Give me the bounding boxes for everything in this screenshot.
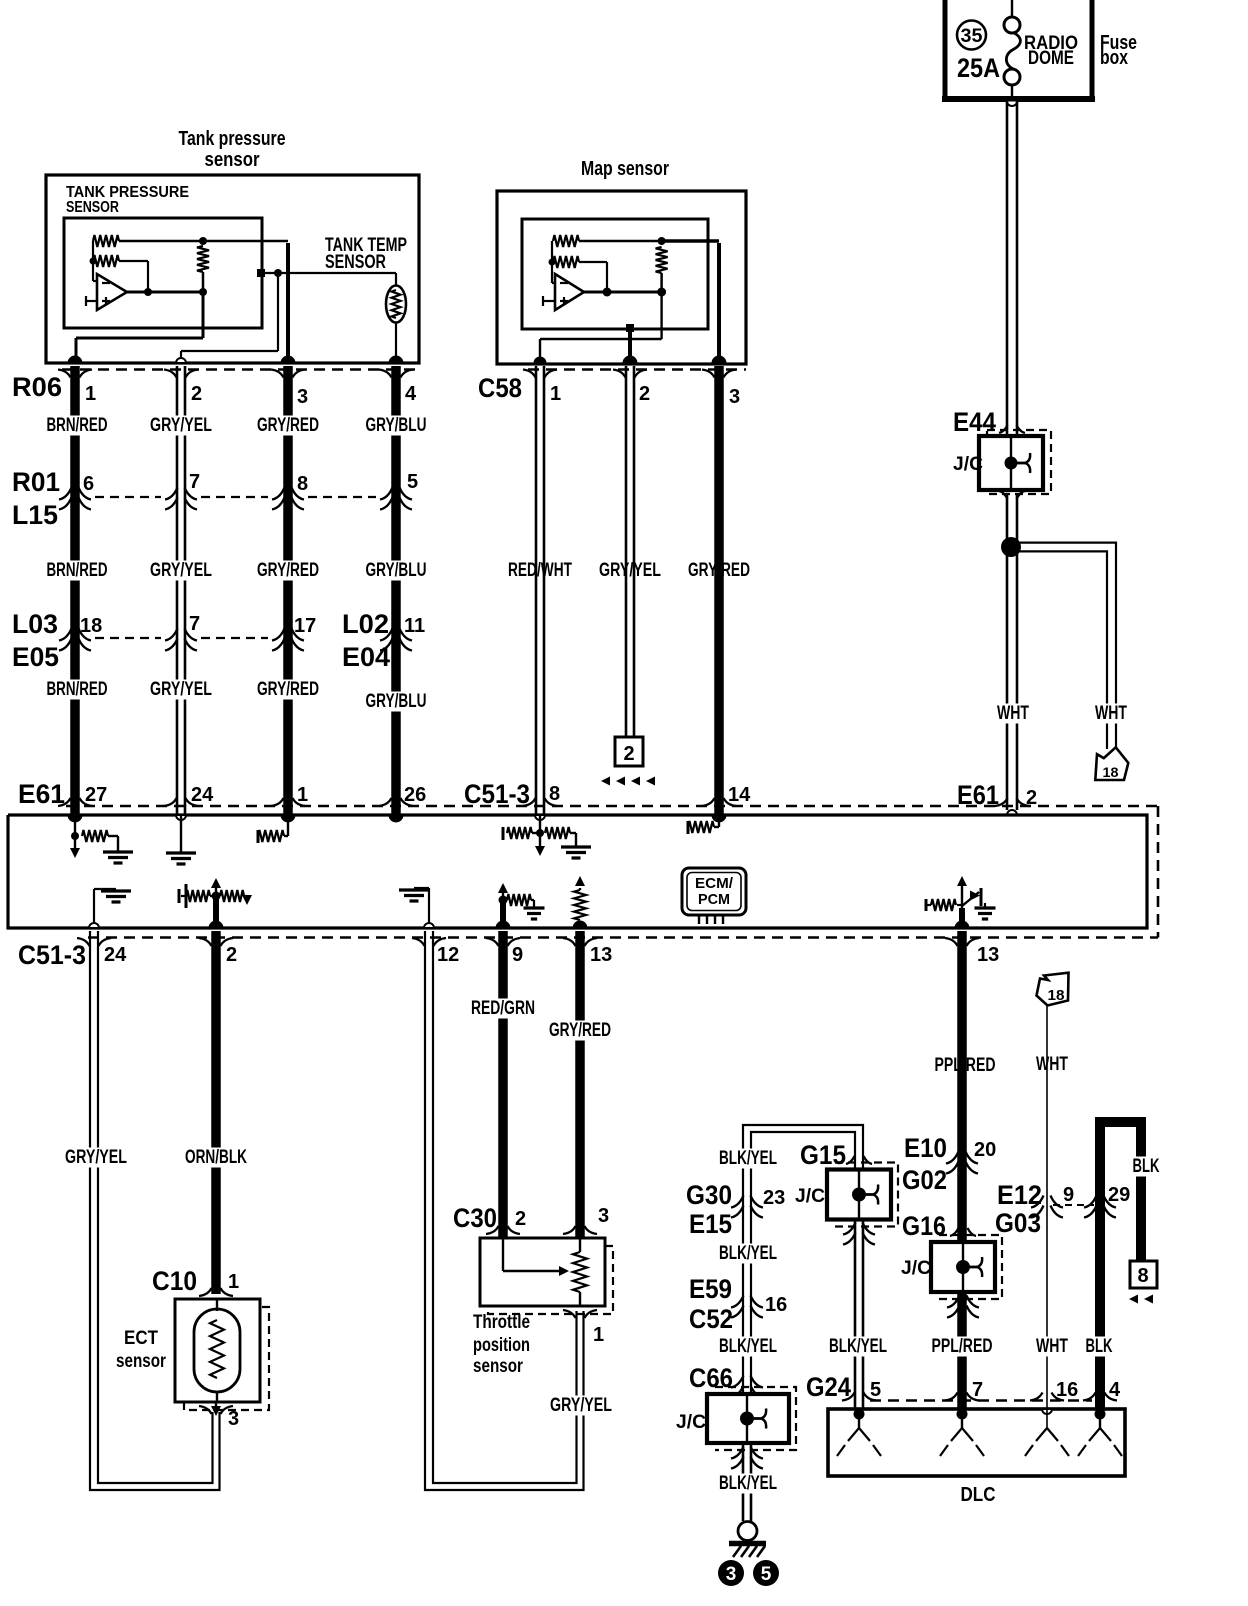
svg-text:sensor: sensor (205, 149, 260, 171)
svg-text:5: 5 (870, 1379, 881, 1401)
svg-text:E10: E10 (904, 1133, 947, 1163)
svg-text:C66: C66 (689, 1363, 733, 1393)
svg-text:11: 11 (404, 615, 425, 637)
svg-text:C10: C10 (152, 1266, 197, 1296)
svg-text:C58: C58 (478, 373, 522, 403)
svg-text:5: 5 (761, 1564, 772, 1585)
svg-text:L02: L02 (342, 609, 389, 639)
svg-text:L03: L03 (12, 609, 58, 639)
svg-text:RED/WHT: RED/WHT (508, 560, 572, 581)
svg-text:GRY/YEL: GRY/YEL (150, 679, 212, 700)
svg-text:ECM/: ECM/ (695, 875, 734, 892)
svg-text:2: 2 (639, 383, 650, 405)
svg-text:GRY/RED: GRY/RED (257, 415, 319, 436)
svg-text:GRY/YEL: GRY/YEL (150, 560, 212, 581)
svg-text:J/C: J/C (901, 1258, 931, 1279)
svg-text:GRY/RED: GRY/RED (257, 679, 319, 700)
svg-text:box: box (1100, 47, 1128, 69)
svg-text:E61: E61 (18, 779, 65, 809)
svg-text:1: 1 (593, 1324, 604, 1346)
svg-text:WHT: WHT (997, 703, 1029, 724)
svg-text:C52: C52 (689, 1304, 733, 1334)
svg-text:GRY/YEL: GRY/YEL (150, 415, 212, 436)
svg-text:Tank pressure: Tank pressure (179, 128, 286, 150)
svg-text:G02: G02 (902, 1165, 947, 1195)
svg-text:E44: E44 (953, 407, 996, 437)
svg-text:BRN/RED: BRN/RED (47, 560, 108, 581)
svg-text:G24: G24 (806, 1372, 851, 1402)
svg-text:C51-3: C51-3 (464, 779, 530, 809)
svg-text:9: 9 (1063, 1184, 1074, 1206)
svg-text:BRN/RED: BRN/RED (47, 415, 108, 436)
svg-text:8: 8 (297, 473, 308, 495)
svg-text:27: 27 (85, 784, 107, 806)
svg-text:G16: G16 (902, 1211, 946, 1241)
svg-text:24: 24 (191, 784, 214, 806)
svg-text:E05: E05 (12, 642, 59, 672)
svg-text:WHT: WHT (1036, 1054, 1068, 1075)
svg-text:WHT: WHT (1036, 1336, 1068, 1357)
svg-text:ECT: ECT (124, 1328, 158, 1349)
svg-text:GRY/YEL: GRY/YEL (550, 1395, 612, 1416)
svg-text:35: 35 (961, 26, 983, 47)
svg-text:GRY/YEL: GRY/YEL (65, 1147, 127, 1168)
svg-text:GRY/RED: GRY/RED (549, 1020, 611, 1041)
svg-text:Throttle: Throttle (473, 1312, 530, 1333)
svg-text:16: 16 (765, 1294, 787, 1316)
svg-text:17: 17 (294, 615, 316, 637)
svg-text:29: 29 (1108, 1184, 1130, 1206)
svg-text:sensor: sensor (473, 1356, 523, 1377)
svg-text:20: 20 (974, 1139, 996, 1161)
svg-text:BLK/YEL: BLK/YEL (719, 1336, 777, 1357)
svg-text:J/C: J/C (795, 1186, 825, 1207)
svg-text:BRN/RED: BRN/RED (47, 679, 108, 700)
svg-text:GRY/BLU: GRY/BLU (366, 560, 427, 581)
svg-text:R01: R01 (12, 467, 60, 497)
svg-text:E59: E59 (689, 1274, 732, 1304)
svg-text:DOME: DOME (1028, 48, 1074, 69)
svg-text:sensor: sensor (116, 1351, 166, 1372)
svg-text:GRY/BLU: GRY/BLU (366, 691, 427, 712)
svg-text:18: 18 (1103, 764, 1119, 780)
svg-text:GRY/RED: GRY/RED (257, 560, 319, 581)
svg-text:ORN/BLK: ORN/BLK (185, 1147, 247, 1168)
svg-text:12: 12 (437, 944, 459, 966)
svg-text:BLK/YEL: BLK/YEL (719, 1243, 777, 1264)
svg-text:1: 1 (85, 383, 96, 405)
svg-text:2: 2 (623, 743, 634, 765)
svg-text:BLK: BLK (1086, 1336, 1113, 1357)
svg-text:7: 7 (189, 471, 200, 493)
svg-text:26: 26 (404, 784, 426, 806)
svg-text:J/C: J/C (953, 454, 983, 475)
svg-text:G03: G03 (995, 1208, 1041, 1238)
svg-text:3: 3 (726, 1564, 737, 1585)
svg-text:C51-3: C51-3 (18, 940, 86, 970)
svg-text:13: 13 (590, 944, 612, 966)
svg-text:position: position (473, 1335, 530, 1356)
svg-text:4: 4 (1109, 1379, 1121, 1401)
svg-text:5: 5 (407, 471, 418, 493)
svg-text:Map sensor: Map sensor (581, 158, 669, 180)
svg-text:R06: R06 (12, 372, 62, 402)
svg-text:3: 3 (228, 1408, 239, 1430)
svg-text:25A: 25A (957, 53, 1000, 83)
svg-text:3: 3 (729, 386, 740, 408)
svg-text:24: 24 (104, 944, 127, 966)
svg-text:18: 18 (80, 615, 102, 637)
svg-text:E15: E15 (689, 1209, 732, 1239)
svg-text:E04: E04 (342, 642, 390, 672)
svg-text:7: 7 (189, 613, 200, 635)
svg-text:2: 2 (515, 1208, 526, 1230)
svg-text:PCM: PCM (698, 891, 730, 908)
svg-text:GRY/BLU: GRY/BLU (366, 415, 427, 436)
svg-text:7: 7 (972, 1379, 983, 1401)
svg-text:PPL/RED: PPL/RED (932, 1336, 993, 1357)
svg-text:DLC: DLC (961, 1484, 996, 1506)
svg-text:18: 18 (1048, 987, 1065, 1004)
svg-text:4: 4 (405, 383, 417, 405)
svg-text:G15: G15 (800, 1140, 846, 1170)
svg-text:BLK/YEL: BLK/YEL (829, 1336, 887, 1357)
svg-text:SENSOR: SENSOR (66, 199, 119, 216)
svg-text:2: 2 (226, 944, 237, 966)
svg-text:G30: G30 (686, 1180, 732, 1210)
svg-text:RED/GRN: RED/GRN (471, 998, 535, 1019)
svg-text:1: 1 (228, 1271, 239, 1293)
svg-text:2: 2 (191, 383, 202, 405)
svg-text:1: 1 (550, 383, 561, 405)
svg-text:3: 3 (297, 386, 308, 408)
svg-text:9: 9 (512, 944, 523, 966)
svg-text:8: 8 (1137, 1265, 1148, 1287)
svg-text:BLK/YEL: BLK/YEL (719, 1148, 777, 1169)
svg-text:8: 8 (549, 783, 560, 805)
svg-text:13: 13 (977, 944, 999, 966)
svg-text:C30: C30 (453, 1203, 497, 1233)
svg-text:3: 3 (598, 1205, 609, 1227)
svg-text:L15: L15 (12, 500, 58, 530)
svg-text:WHT: WHT (1095, 703, 1127, 724)
svg-text:GRY/YEL: GRY/YEL (599, 560, 661, 581)
svg-text:16: 16 (1056, 1379, 1078, 1401)
svg-text:23: 23 (763, 1187, 785, 1209)
svg-text:J/C: J/C (676, 1412, 706, 1433)
svg-text:6: 6 (83, 473, 94, 495)
svg-text:BLK: BLK (1133, 1156, 1160, 1177)
svg-text:BLK/YEL: BLK/YEL (719, 1473, 777, 1494)
svg-text:1: 1 (297, 784, 308, 806)
svg-text:14: 14 (728, 784, 751, 806)
svg-text:SENSOR: SENSOR (325, 252, 386, 273)
